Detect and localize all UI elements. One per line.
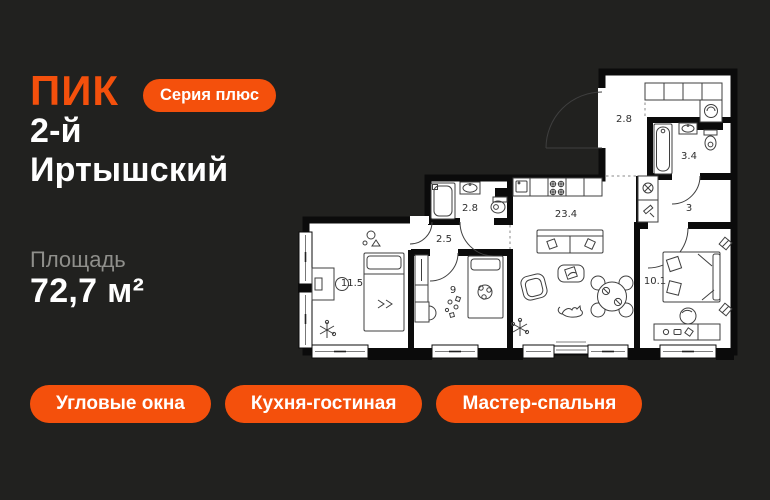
- tag-master-bedroom[interactable]: Мастер-спальня: [436, 385, 642, 423]
- sofa-icon: [537, 230, 603, 253]
- room-label-bedroom: 11.5: [341, 278, 363, 289]
- sink-icon: [679, 123, 697, 134]
- coffee-table-icon: [558, 265, 584, 282]
- bed-single-icon: [364, 253, 404, 331]
- room-label-master: 10.1: [644, 276, 666, 287]
- vanity-console-icon: [654, 324, 720, 340]
- room-label-corridor: 3: [686, 203, 692, 214]
- project-title-line2: Иртышский: [30, 151, 228, 190]
- washbasin-icon: [460, 182, 480, 194]
- feature-tags: Угловые окна Кухня-гостиная Мастер-спаль…: [30, 385, 642, 423]
- bathtub-icon: [654, 124, 672, 174]
- dining-table-icon: [591, 276, 633, 317]
- room-label-hallway: 2.5: [436, 234, 452, 245]
- room-label-bathroom: 3.4: [681, 151, 697, 162]
- room-label-shower-room: 2.8: [462, 203, 478, 214]
- closet-shelves-icon: [645, 83, 722, 100]
- room-label-kitchen: 23.4: [555, 209, 577, 220]
- tag-kitchen-living[interactable]: Кухня-гостиная: [225, 385, 423, 423]
- tag-corner-windows[interactable]: Угловые окна: [30, 385, 211, 423]
- area-label: Площадь: [30, 247, 126, 273]
- pouf-icon: [680, 308, 696, 324]
- room-label-kids-bedroom: 9: [450, 285, 456, 296]
- project-title: 2-й Иртышский: [30, 112, 228, 190]
- area-value: 72,7 м²: [30, 272, 144, 311]
- floor-plan: 2.8 3.4 3 2.8 2.5 23.4 11.5 9 10.1: [298, 64, 742, 360]
- series-badge[interactable]: Серия плюс: [143, 79, 276, 112]
- bed-kids-icon: [468, 256, 503, 318]
- bed-double-icon: [663, 252, 720, 302]
- banner: ПИК Серия плюс 2-й Иртышский Площадь 72,…: [0, 0, 770, 500]
- washing-machine-icon: [700, 100, 722, 122]
- shower-tray-icon: [431, 183, 455, 219]
- utility-cells-icon: [638, 176, 658, 222]
- room-label-entry-hall: 2.8: [616, 114, 632, 125]
- project-title-line1: 2-й: [30, 112, 228, 151]
- kitchen-counter-icon: [513, 178, 602, 196]
- pik-logo: ПИК: [30, 70, 119, 112]
